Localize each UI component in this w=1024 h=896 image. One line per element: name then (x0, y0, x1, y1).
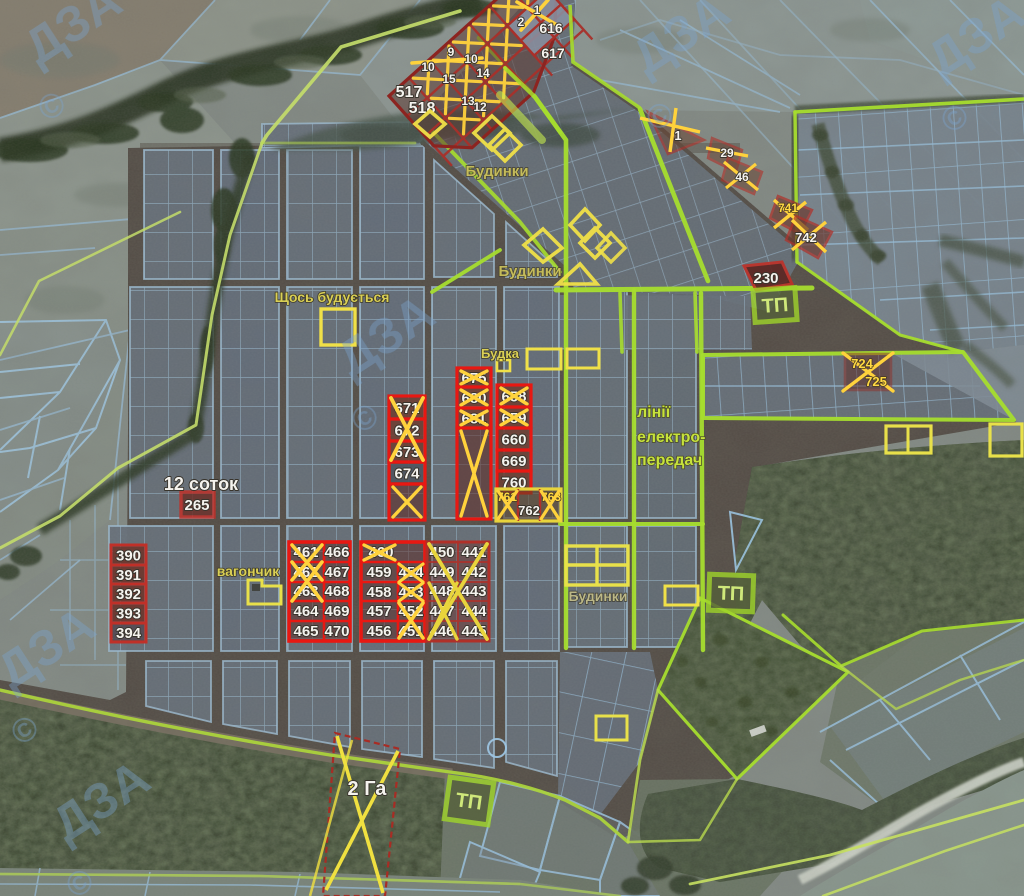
svg-text:Будка: Будка (481, 346, 520, 361)
svg-text:вагончик: вагончик (217, 563, 281, 579)
svg-text:ТП: ТП (454, 789, 483, 814)
svg-text:742: 742 (795, 230, 817, 245)
svg-text:392: 392 (116, 586, 141, 603)
svg-text:46: 46 (735, 170, 749, 184)
svg-text:669: 669 (501, 453, 526, 470)
svg-text:електро-: електро- (637, 429, 705, 446)
svg-text:724: 724 (851, 356, 873, 371)
svg-text:466: 466 (324, 544, 349, 561)
svg-text:517: 517 (396, 84, 423, 101)
svg-text:456: 456 (366, 623, 391, 640)
svg-text:467: 467 (324, 564, 349, 581)
svg-text:470: 470 (324, 623, 349, 640)
svg-text:ТП: ТП (761, 294, 789, 318)
svg-text:457: 457 (366, 603, 391, 620)
svg-text:674: 674 (394, 466, 420, 483)
svg-text:465: 465 (293, 623, 318, 640)
svg-text:390: 390 (116, 548, 141, 565)
svg-text:616: 616 (539, 20, 563, 36)
svg-text:10: 10 (464, 52, 478, 66)
svg-text:1: 1 (674, 128, 681, 143)
svg-text:Щось будується: Щось будується (275, 289, 390, 305)
svg-text:1: 1 (534, 3, 541, 17)
svg-text:468: 468 (324, 583, 349, 600)
svg-text:393: 393 (116, 606, 141, 623)
svg-text:14: 14 (476, 66, 490, 80)
svg-text:Будинки: Будинки (465, 163, 528, 180)
svg-text:передач: передач (637, 452, 702, 469)
svg-text:660: 660 (501, 432, 526, 449)
svg-text:Будинки: Будинки (498, 263, 561, 280)
svg-text:Будинки: Будинки (569, 588, 628, 604)
svg-text:741: 741 (778, 201, 798, 215)
svg-text:443: 443 (461, 583, 486, 600)
svg-text:464: 464 (293, 603, 319, 620)
svg-text:458: 458 (366, 584, 391, 601)
svg-text:725: 725 (865, 374, 887, 389)
svg-text:762: 762 (518, 503, 540, 518)
svg-text:лінії: лінії (637, 404, 671, 421)
svg-text:265: 265 (184, 497, 209, 514)
svg-text:230: 230 (753, 270, 778, 287)
svg-text:10: 10 (421, 60, 435, 74)
svg-text:ТП: ТП (717, 583, 744, 606)
svg-text:12 соток: 12 соток (164, 474, 239, 494)
svg-text:2: 2 (518, 15, 525, 29)
svg-text:15: 15 (442, 72, 456, 86)
svg-text:394: 394 (116, 625, 142, 642)
svg-text:12: 12 (473, 100, 487, 114)
svg-text:459: 459 (366, 564, 391, 581)
svg-text:9: 9 (448, 45, 455, 59)
svg-text:469: 469 (324, 603, 349, 620)
svg-text:391: 391 (116, 567, 141, 584)
svg-text:2 Га: 2 Га (348, 778, 388, 800)
svg-text:617: 617 (541, 45, 565, 61)
